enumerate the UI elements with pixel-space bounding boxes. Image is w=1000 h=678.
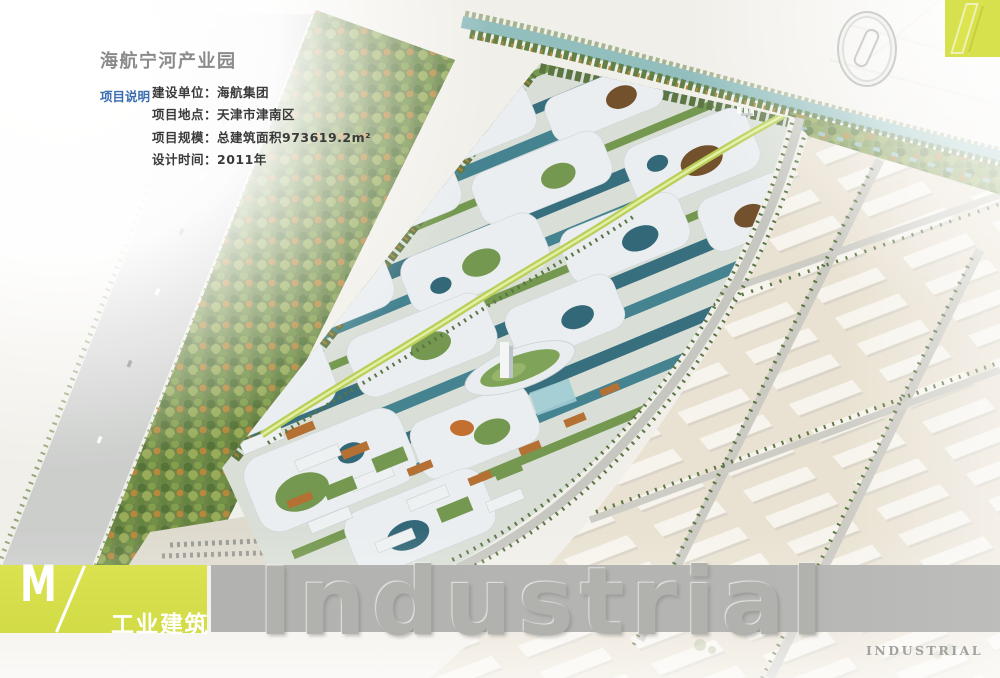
- brand-label: INDUSTRIAL: [866, 643, 983, 658]
- category-slash: [55, 565, 86, 632]
- watermark-text: Industrial: [258, 556, 829, 650]
- project-info-row: 项目规模：总建筑面积973619.2m²: [152, 127, 371, 149]
- category-name: 工业建筑: [111, 605, 209, 639]
- category-code: M: [20, 555, 57, 613]
- page-title: 海航宁河产业园: [100, 47, 237, 73]
- category-block: M / 工业建筑: [0, 565, 207, 633]
- project-info: 项目说明 建设单位：海航集团 项目地点：天津市津南区 项目规模：总建筑面积973…: [100, 82, 371, 171]
- project-info-row: 建设单位：海航集团: [152, 82, 371, 104]
- project-info-row: 项目地点：天津市津南区: [152, 104, 371, 126]
- project-info-row: 设计时间：2011年: [152, 149, 371, 171]
- accent-square: [945, 0, 1000, 57]
- digit-zero-outline: [837, 11, 897, 87]
- project-info-rows: 建设单位：海航集团 项目地点：天津市津南区 项目规模：总建筑面积973619.2…: [152, 82, 371, 171]
- presentation-board: 海航宁河产业园 项目说明 建设单位：海航集团 项目地点：天津市津南区 项目规模：…: [0, 0, 1000, 678]
- page-number: 01: [885, 0, 1000, 100]
- section-label: 项目说明: [100, 86, 150, 105]
